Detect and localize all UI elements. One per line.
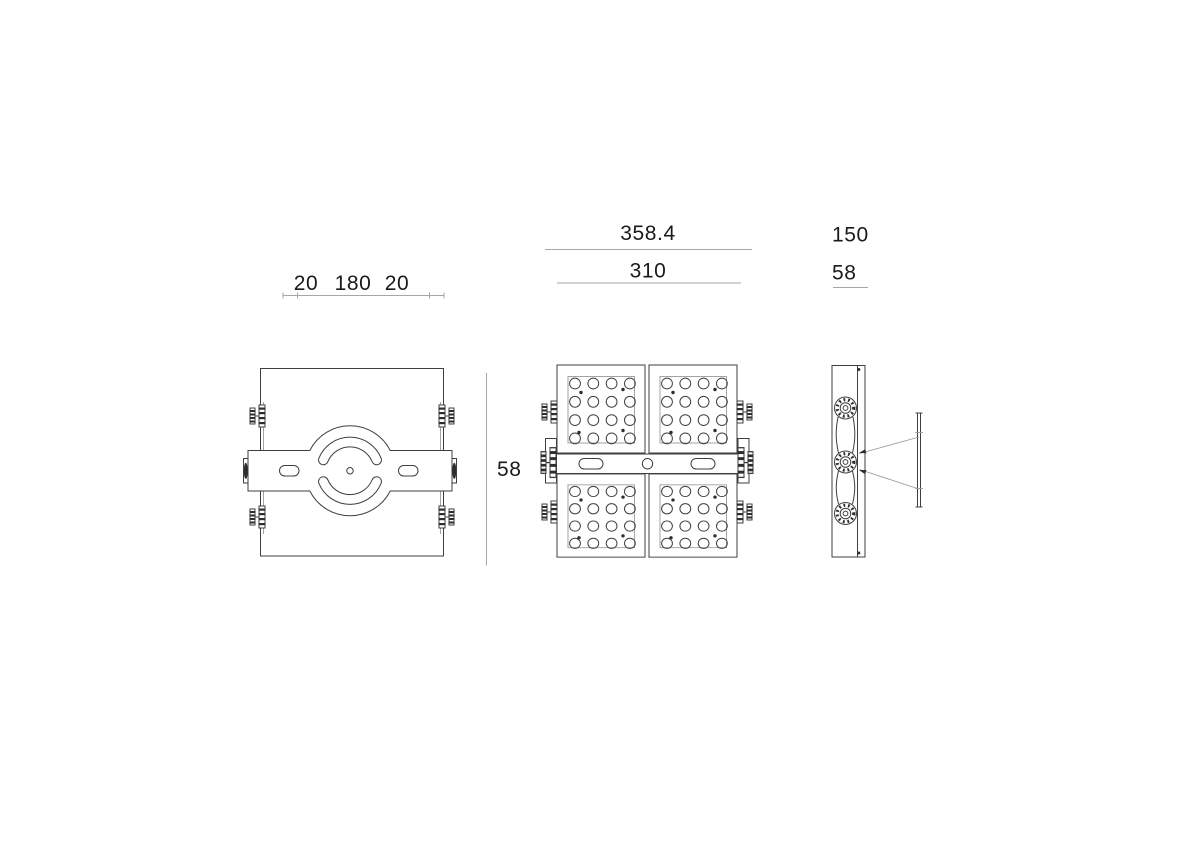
- drawing-canvas: 20 180 20 58 358.4 310: [0, 0, 1191, 842]
- led-module: [649, 365, 737, 453]
- strap-end-pin: [244, 463, 248, 479]
- dimension-label: 310: [630, 260, 667, 283]
- dimension-label: 58: [832, 262, 857, 285]
- led-module: [557, 365, 645, 453]
- dimension-label: 58: [497, 458, 522, 481]
- screw-dot: [857, 552, 860, 555]
- screw-dot: [857, 368, 860, 371]
- adjustment-knob: [835, 451, 857, 473]
- led-module: [649, 474, 737, 557]
- dimension-label: 20: [385, 272, 410, 295]
- floodlight-technical-drawing: 20 180 20 58 358.4 310: [0, 0, 1191, 842]
- adjustment-knob: [835, 503, 857, 525]
- dimension-label: 180: [335, 272, 372, 295]
- centre-band: [557, 454, 739, 474]
- led-module: [557, 474, 645, 557]
- dimension-label: 20: [294, 272, 319, 295]
- dimension-label: 150: [832, 224, 869, 247]
- adjustment-knob: [835, 397, 857, 419]
- strap-end-pin: [452, 463, 456, 479]
- dimension-label: 358.4: [620, 222, 676, 245]
